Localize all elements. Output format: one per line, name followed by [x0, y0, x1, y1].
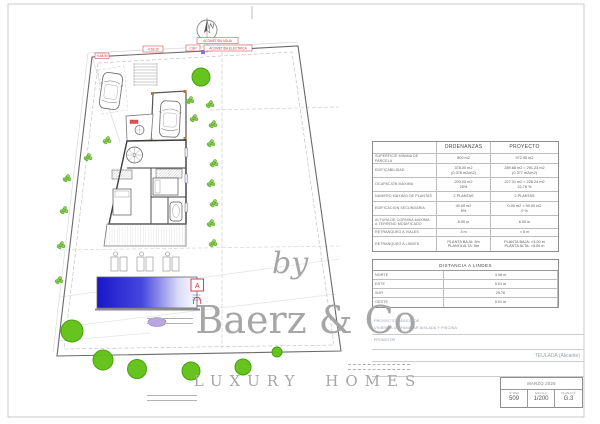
bed [113, 189, 131, 215]
promotor-label: PROMOTOR [374, 338, 395, 342]
titleblock-divider [372, 361, 584, 362]
annotation-tag-label: +169.16 [147, 47, 159, 51]
bush-icon [57, 242, 65, 250]
annotation-tag-label: CGP [190, 46, 197, 50]
scale-label: ESCALA [535, 391, 547, 395]
annotation-tag: +169.16 [143, 46, 163, 52]
swimming-pool [97, 277, 197, 308]
scale-value: 1/200 [533, 396, 548, 402]
distance-value: 5.01 m [444, 298, 558, 307]
annotation-tag-label: +168.90 [96, 54, 108, 58]
ord-row-proyecto: 227.01 m2 < 228.24 m2 22.76 % [491, 178, 558, 192]
ref-label: Nº REF [509, 391, 519, 395]
ord-row-label: RETRANQUEO A LINDES [373, 237, 437, 251]
bush-icon [103, 137, 111, 145]
bush-icon [206, 101, 214, 109]
ord-row-label: SUPERFICIE MINIMA DE PARCELA [373, 154, 437, 164]
ord-row-label: ALTURA DE CORNISA MAXIMA A TERRENO MODIF… [373, 216, 437, 229]
ord-row-proyecto: 2 PLANTAS [491, 192, 558, 202]
titleblock-divider [372, 334, 584, 335]
table-row: EDIFICACION SECUNDARIA40.00 m2 5%0.00 m2… [373, 202, 558, 216]
distances-title: DISTANCIA A LINDES [373, 260, 558, 271]
distance-label: ESTE [373, 280, 444, 289]
sheet-number-label: PLANO Nº [561, 391, 575, 395]
reference-block: MARZO 2025 Nº REF 509 ESCALA 1/200 PLANO… [500, 377, 583, 408]
distance-label: OESTE [373, 298, 444, 307]
distance-label: NORTE [373, 271, 444, 280]
ord-row-ordenanzas: PLANTA BAJA: 3m PLANTA ALTA: 5m [437, 237, 491, 251]
bush-icon [207, 180, 215, 188]
ref-number-cell: Nº REF 509 [501, 390, 528, 408]
bush-icon [207, 140, 215, 148]
car-icon [158, 100, 182, 137]
ord-row-proyecto: 972.95 m2 [491, 154, 558, 164]
ord-row-proyecto: PLANTA BAJA: >3.00 m PLANTA ALTA: >5.00 … [491, 237, 558, 251]
table-row: RETRANQUEO A LINDESPLANTA BAJA: 3m PLANT… [373, 237, 558, 251]
tree-icon [235, 359, 251, 375]
bush-icon [190, 115, 198, 123]
ord-row-label: OCUPACIÓN MÁXIMA [373, 178, 437, 192]
car-icon [98, 72, 125, 111]
distance-label: SUR [373, 289, 444, 298]
bush-icon [60, 207, 68, 215]
table-row: EDIFICABILIDAD378.00 m2 (0.378 m2/m2)289… [373, 164, 558, 178]
bush-icon [207, 220, 215, 228]
spiral-stair [127, 147, 143, 163]
ref-value: 509 [509, 396, 519, 402]
table-row: SUR29.76 [373, 289, 558, 298]
annotation-tag-label: ACOMETIDA AGUA [203, 39, 232, 43]
distance-value: 3.38 m [444, 271, 558, 280]
project-line2: VIVIENDA UNIFAMILIAR AISLADA Y PISCINA [374, 325, 457, 330]
table-row: OCUPACIÓN MÁXIMA200.00 m2 25%227.01 m2 <… [373, 178, 558, 192]
ord-row-proyecto: 289.68 m2 < 291.23 m2 (0.377 m2/m2) [491, 164, 558, 178]
wardrobe [112, 170, 132, 179]
ordinances-table: ORDENANZASPROYECTOSUPERFICIE MINIMA DE P… [372, 141, 559, 252]
distances-table: DISTANCIA A LINDES NORTE3.38 mESTE5.01 m… [372, 259, 559, 308]
purple-shrub [148, 318, 166, 327]
ord-row-proyecto: 0.00 m2 < 50.00 m2 0 % [491, 202, 558, 216]
utility-box [130, 120, 138, 124]
driveway-steps [134, 63, 157, 86]
bush-icon [186, 97, 194, 105]
ord-row-ordenanzas: 200.00 m2 25% [437, 178, 491, 192]
ord-row-ordenanzas: 2 PLANTAS [437, 192, 491, 202]
bathtub [170, 202, 182, 221]
annotation-tag: +168.90 [95, 53, 109, 59]
bush-icon [210, 200, 218, 208]
deck-terrace [104, 224, 186, 246]
date: MARZO 2025 [501, 378, 582, 390]
section-marker-label: A [195, 283, 200, 290]
ord-row-ordenanzas: 378.00 m2 (0.378 m2/m2) [437, 164, 491, 178]
ord-row-label: RETRANQUEO A VIALES [373, 229, 437, 237]
ord-header-ordenanzas: ORDENANZAS [437, 142, 491, 154]
bush-icon [84, 154, 92, 162]
bed [153, 178, 178, 195]
bush-icon [209, 121, 217, 129]
bush-icon [209, 240, 217, 248]
table-row: OESTE5.01 m [373, 298, 558, 307]
ord-row-ordenanzas: 3 m [437, 229, 491, 237]
ord-header-empty [373, 142, 437, 154]
scale-cell: ESCALA 1/200 [528, 390, 555, 408]
tree-icon [128, 360, 147, 379]
table-row: SUPERFICIE MINIMA DE PARCELA800 m2972.95… [373, 154, 558, 164]
table-row: NORTE3.38 m [373, 271, 558, 280]
street-edge-left [53, 53, 88, 352]
sheet-number-value: G.3 [564, 396, 574, 402]
ord-row-label: EDIFICACION SECUNDARIA [373, 202, 437, 216]
drawing-sheet: A N +168.90+169.16ACOMETIDA AGUACGPACOME… [0, 0, 600, 424]
wardrobe [156, 169, 182, 178]
ord-row-ordenanzas: 8.50 m [437, 216, 491, 229]
annotation-tag: ACOMETIDA ELECTRICA [204, 45, 252, 51]
ord-row-label: EDIFICABILIDAD [373, 164, 437, 178]
ord-header-proyecto: PROYECTO [491, 142, 558, 154]
location: TEULADA (Alicante) [372, 353, 580, 359]
tree-icon [192, 68, 210, 86]
ord-row-label: NUMERO MAXIMO DE PLANTAS [373, 192, 437, 202]
titleblock-divider [372, 349, 584, 350]
tree-icon [272, 347, 282, 357]
table-row: RETRANQUEO A VIALES3 m> 5 m [373, 229, 558, 237]
ord-row-ordenanzas: 800 m2 [437, 154, 491, 164]
table-row: ESTE5.01 m [373, 280, 558, 289]
sun-loungers [111, 252, 179, 271]
sheet-number-cell: PLANO Nº G.3 [555, 390, 582, 408]
annotation-tag: CGP [186, 45, 200, 51]
tree-icon [61, 320, 83, 342]
project-line1: PROYECTO BÁSICO DE [374, 318, 419, 323]
tree-icon [93, 350, 113, 370]
distance-value: 29.76 [444, 289, 558, 298]
table-row: NUMERO MAXIMO DE PLANTAS2 PLANTAS2 PLANT… [373, 192, 558, 202]
annotation-tag-label: ACOMETIDA ELECTRICA [209, 46, 247, 50]
annotation-tag: ACOMETIDA AGUA [197, 38, 238, 44]
distance-value: 5.01 m [444, 280, 558, 289]
tree-icon [182, 362, 200, 380]
ord-row-ordenanzas: 40.00 m2 5% [437, 202, 491, 216]
ord-row-proyecto: 6.00 m [491, 216, 558, 229]
bush-icon [210, 160, 218, 168]
bush-icon [63, 175, 71, 183]
ord-row-proyecto: > 5 m [491, 229, 558, 237]
table-row: ALTURA DE CORNISA MAXIMA A TERRENO MODIF… [373, 216, 558, 229]
